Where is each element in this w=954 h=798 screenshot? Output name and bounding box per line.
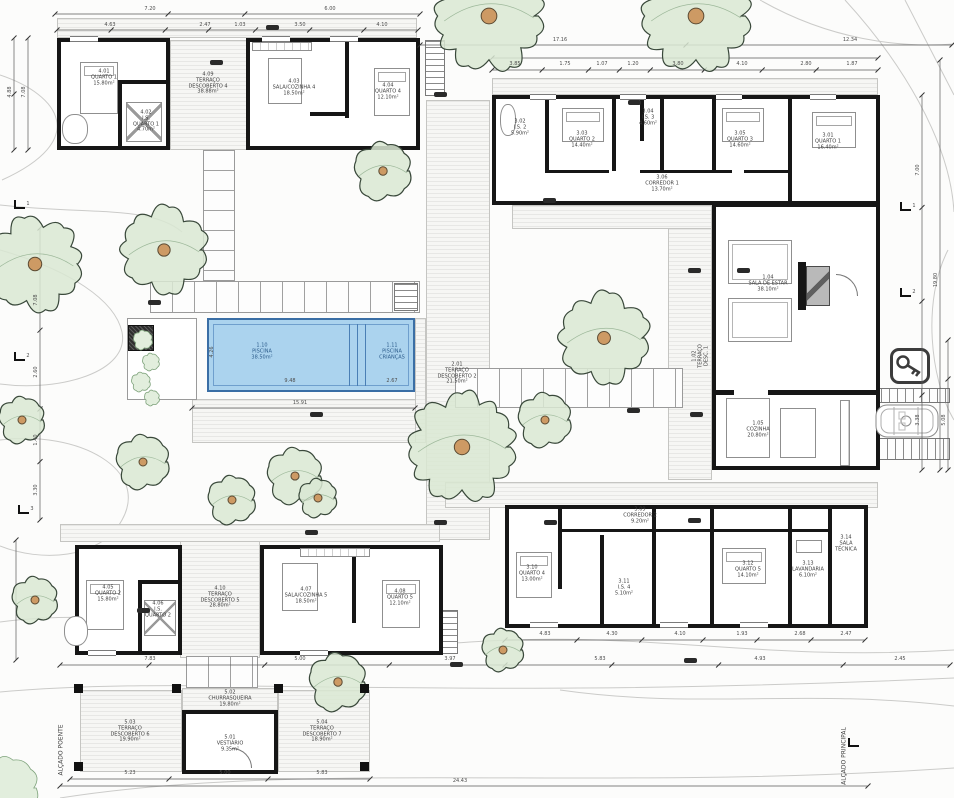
laundry-machines: [796, 540, 822, 553]
pool-lane-line: [357, 324, 358, 386]
dimension-label: 2.47: [840, 631, 851, 637]
dimension-label: 5.83: [594, 656, 605, 662]
shrub: [0, 756, 38, 798]
terrace-between-top-suites: [170, 40, 248, 150]
wall: [788, 99, 792, 201]
dimension-label: 3.30: [33, 484, 39, 495]
dimension-label: 7.00: [915, 164, 921, 175]
courtyard-top-band: [512, 205, 712, 229]
dimension-label: 5.08: [941, 414, 947, 425]
terrace-left-of-main-house: [426, 100, 490, 540]
wall: [558, 509, 562, 589]
section-marker-number: 2: [912, 289, 915, 295]
site-plan: 4.01 QUARTO 1 15.80m²4.02 I.S. QUARTO 1 …: [0, 0, 954, 798]
dimension-label: 2.60: [33, 366, 39, 377]
pool-lane-line: [349, 324, 350, 386]
wall: [558, 529, 832, 532]
dimension-label: 4.93: [754, 656, 765, 662]
dimension-label: 1.93: [736, 631, 747, 637]
dimension-label: 3.97: [444, 656, 455, 662]
wall: [118, 80, 122, 146]
wall: [545, 170, 609, 173]
dimension-label: 7.08: [33, 294, 39, 305]
dimension-label: 2.68: [794, 631, 805, 637]
window: [530, 622, 558, 628]
tree: [299, 478, 337, 518]
tree: [434, 0, 544, 71]
window: [530, 94, 556, 100]
opening-tag: [450, 662, 463, 667]
window: [660, 622, 688, 628]
bed: [812, 112, 856, 148]
dimension-label: 4.10: [674, 631, 685, 637]
key-icon: [893, 351, 927, 381]
section-marker-number: 2: [26, 353, 29, 359]
parking-strip-lower: [870, 438, 950, 460]
terrace-between-bottom-suites: [180, 540, 260, 658]
fireplace: [806, 266, 830, 306]
deck-strip-above-top-wing: [492, 78, 878, 95]
section-marker: [900, 288, 911, 297]
dining-table: [268, 58, 302, 104]
section-marker: [14, 200, 25, 209]
window: [300, 650, 328, 656]
tree: [482, 628, 524, 672]
dimension-label: 17.16: [553, 37, 567, 43]
window: [716, 94, 742, 100]
car-top-view: [874, 402, 940, 440]
pool-lane-line: [365, 324, 366, 386]
dining-table: [282, 563, 318, 611]
bed: [722, 548, 766, 584]
wall: [640, 170, 732, 173]
parking-strip-upper: [872, 388, 950, 403]
dimension-label: 4.83: [539, 631, 550, 637]
tree: [12, 576, 57, 624]
deck-right-of-pool: [415, 318, 426, 443]
dimension-label: 19.80: [933, 273, 939, 287]
entrance-pavilion: [182, 710, 278, 774]
room-label-alcado-poente: ALÇADO POENTE: [59, 724, 66, 775]
tree: [354, 141, 411, 200]
room-label-alcado-principal: ALÇADO PRINCIPAL: [842, 727, 849, 785]
section-marker-number: 1: [912, 203, 915, 209]
section-marker: [18, 505, 29, 514]
dimension-label: 4.30: [606, 631, 617, 637]
tree: [267, 447, 322, 505]
paver-path-vertical: [203, 150, 235, 281]
wall: [660, 99, 664, 171]
bathtub: [500, 104, 516, 136]
wall: [798, 262, 806, 310]
window: [88, 650, 116, 656]
window: [620, 94, 646, 100]
window: [70, 36, 98, 42]
section-marker: [14, 352, 25, 361]
dimension-label: 12.34: [843, 37, 857, 43]
window: [810, 94, 836, 100]
window: [740, 622, 768, 628]
dimension-label: 5.00: [294, 656, 305, 662]
entrance-left-terrace: [80, 690, 182, 772]
bed: [374, 68, 410, 116]
wall: [712, 99, 716, 171]
section-marker-number: 1: [26, 201, 29, 207]
wall: [652, 509, 656, 625]
pergola-over-pool: [150, 281, 420, 313]
opening-tag: [684, 658, 697, 663]
wall: [600, 535, 604, 625]
deck-strip-top: [57, 18, 417, 38]
dimension-label: 7.83: [144, 656, 155, 662]
wall: [640, 99, 644, 141]
wall: [712, 390, 734, 395]
stairs-top-right-of-suite: [425, 40, 445, 96]
dining-table: [726, 398, 770, 458]
wall: [352, 549, 356, 623]
dimension-label: 6.00: [324, 6, 335, 12]
tree: [116, 434, 169, 490]
kitchen-counter: [840, 400, 850, 466]
wall: [744, 170, 788, 173]
wall: [768, 390, 880, 395]
dimension-label: 7.08: [21, 86, 27, 97]
wall: [828, 509, 832, 625]
dimension-label: 1.75: [559, 61, 570, 67]
wall: [545, 99, 549, 171]
swimming-pool: [207, 318, 415, 392]
wall: [310, 112, 349, 116]
dimension-label: 2.80: [800, 61, 811, 67]
bed: [80, 62, 118, 114]
entrance-right-terrace: [278, 690, 370, 772]
wall: [345, 42, 349, 118]
dimension-label: 1.40: [33, 434, 39, 445]
dimension-label: 2.45: [894, 656, 905, 662]
dimension-label: 3.85: [509, 61, 520, 67]
section-marker: [848, 738, 859, 747]
opening-tag: [627, 408, 640, 413]
dimension-label: 1.20: [627, 61, 638, 67]
kitchen-island: [780, 408, 816, 458]
bed: [516, 552, 552, 598]
section-marker-number: 3: [30, 506, 33, 512]
planter-box: [128, 325, 154, 351]
deck-strip-bottom-suites: [60, 524, 440, 542]
bed: [86, 580, 124, 630]
wall: [138, 580, 178, 584]
dimension-label: 7.20: [144, 6, 155, 12]
window: [330, 36, 358, 42]
wall: [138, 580, 142, 652]
wall: [788, 509, 792, 625]
bathtub: [64, 616, 88, 646]
dimension-label: 24.43: [453, 778, 467, 784]
tree: [641, 0, 751, 71]
dimension-label: 3.80: [672, 61, 683, 67]
dimension-label: 1.87: [846, 61, 857, 67]
kitchen-counter: [252, 42, 312, 51]
sofa-group: [728, 298, 792, 342]
bathtub: [62, 114, 88, 144]
courtyard-right-band: [668, 228, 712, 480]
shower: [126, 102, 162, 142]
dimension-label: 1.07: [596, 61, 607, 67]
tree: [0, 216, 82, 313]
key-sign: [890, 348, 930, 384]
bed: [562, 108, 604, 142]
kitchen-counter: [300, 548, 370, 557]
pool-inner-line: [213, 324, 409, 386]
tree: [0, 396, 44, 444]
deck-below-pool: [192, 399, 416, 443]
entrance-paver-path: [186, 656, 258, 688]
section-marker: [900, 202, 911, 211]
wall: [710, 509, 714, 625]
bbq-band: [182, 688, 278, 712]
wall: [118, 80, 166, 84]
bed: [722, 108, 764, 142]
tree: [208, 475, 255, 525]
bed: [382, 580, 420, 628]
sofa-group: [728, 240, 792, 284]
shower: [144, 600, 176, 636]
courtyard-stepping-stones: [455, 368, 683, 408]
wall: [612, 99, 616, 171]
dimension-label: 4.88: [7, 86, 13, 97]
pergola-end-stairs: [394, 283, 418, 311]
dimension-label: 4.10: [736, 61, 747, 67]
